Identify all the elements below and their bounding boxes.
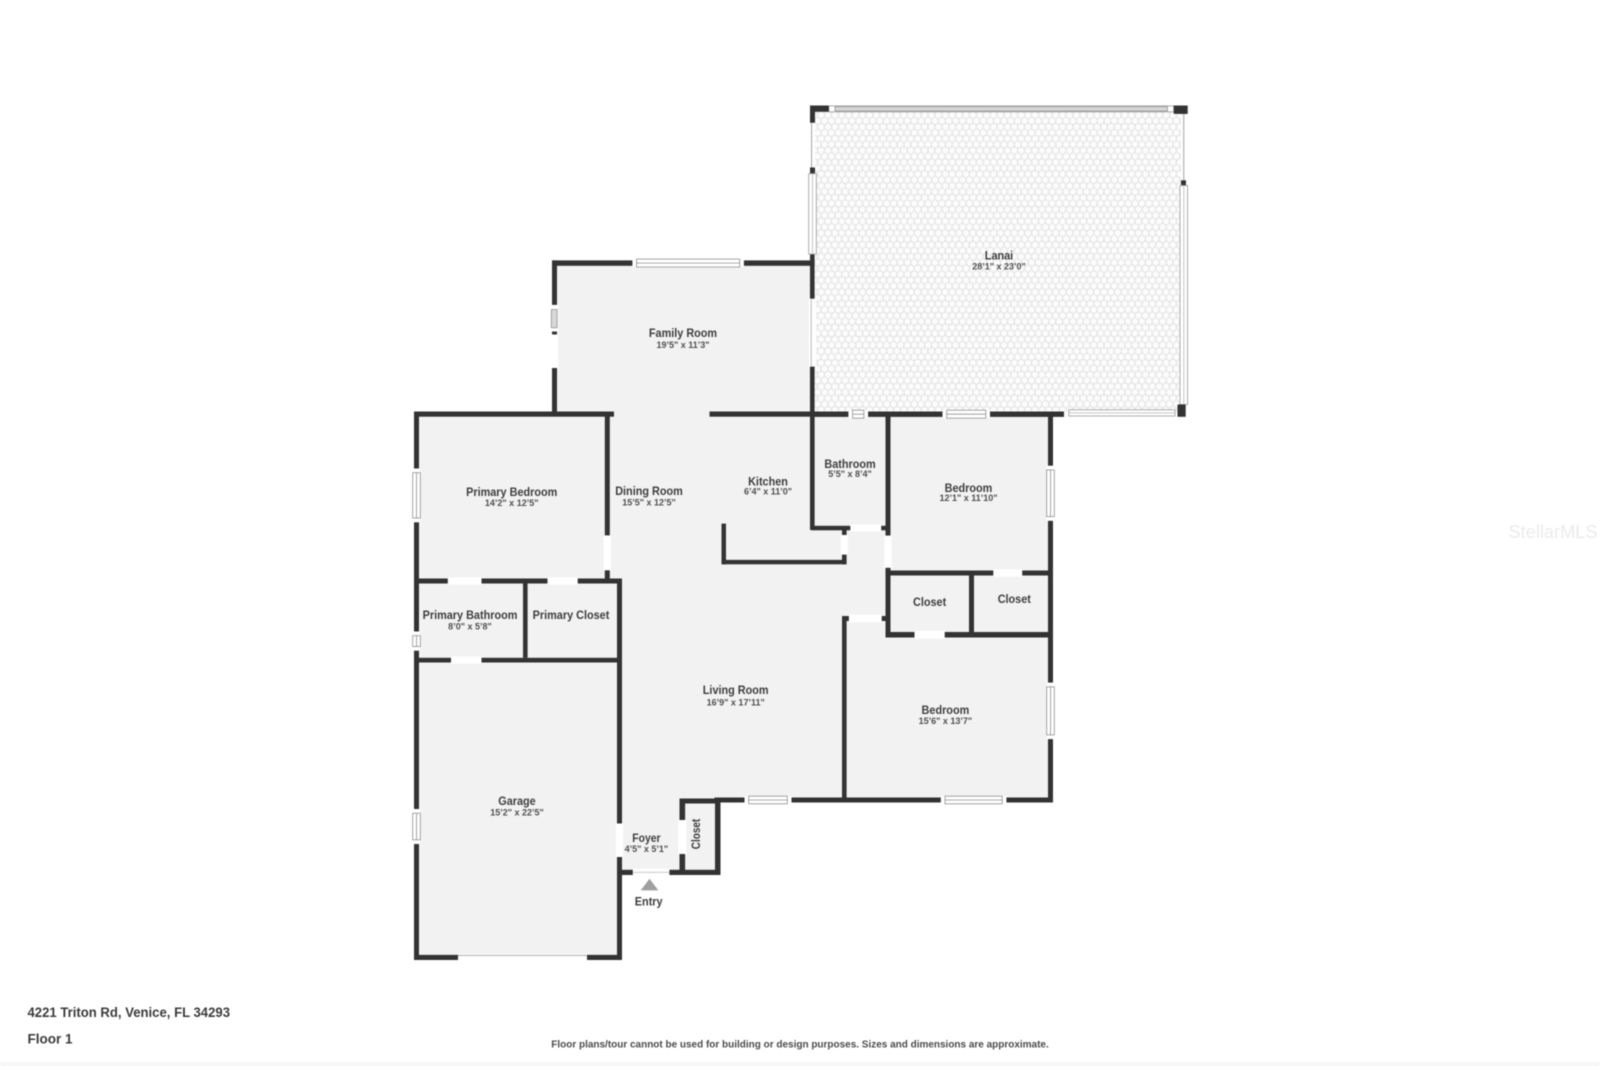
svg-text:Lanai: Lanai <box>985 249 1013 263</box>
svg-text:Floor 1: Floor 1 <box>28 1032 73 1047</box>
svg-text:Bedroom: Bedroom <box>922 703 970 717</box>
svg-text:4221 Triton Rd, Venice, FL 342: 4221 Triton Rd, Venice, FL 34293 <box>28 1005 231 1020</box>
svg-text:15’2" x 22’5": 15’2" x 22’5" <box>490 808 544 818</box>
svg-text:12’1" x 11’10": 12’1" x 11’10" <box>939 493 997 503</box>
svg-text:Primary Bedroom: Primary Bedroom <box>466 485 557 499</box>
svg-text:Dining Room: Dining Room <box>615 484 683 498</box>
svg-text:StellarMLS: StellarMLS <box>1509 522 1598 542</box>
svg-text:5’5" x 8’4": 5’5" x 8’4" <box>828 469 872 479</box>
svg-text:Entry: Entry <box>635 895 663 909</box>
svg-text:Floor plans/tour cannot be use: Floor plans/tour cannot be used for buil… <box>551 1039 1049 1051</box>
svg-text:Family Room: Family Room <box>649 326 717 340</box>
svg-text:16’9" x 17’11": 16’9" x 17’11" <box>707 697 765 707</box>
svg-text:Living Room: Living Room <box>703 683 769 697</box>
svg-text:8’0" x 5’8": 8’0" x 5’8" <box>448 621 492 631</box>
svg-text:Closet: Closet <box>691 819 703 850</box>
svg-text:Primary Bathroom: Primary Bathroom <box>423 608 518 622</box>
svg-text:15’5" x 12’5": 15’5" x 12’5" <box>622 498 676 508</box>
svg-text:Closet: Closet <box>913 595 946 609</box>
svg-text:19’5" x 11’3": 19’5" x 11’3" <box>656 340 709 350</box>
svg-text:Garage: Garage <box>498 794 536 808</box>
svg-text:28’1" x 23’0": 28’1" x 23’0" <box>972 262 1026 272</box>
svg-text:14’2" x 12’5": 14’2" x 12’5" <box>485 498 539 508</box>
svg-text:Closet: Closet <box>998 592 1031 606</box>
svg-text:6’4" x 11’0": 6’4" x 11’0" <box>744 487 792 497</box>
svg-text:4’5" x 5’1": 4’5" x 5’1" <box>625 844 669 854</box>
svg-text:15’6" x 13’7": 15’6" x 13’7" <box>919 716 973 726</box>
svg-text:Primary Closet: Primary Closet <box>533 608 610 622</box>
